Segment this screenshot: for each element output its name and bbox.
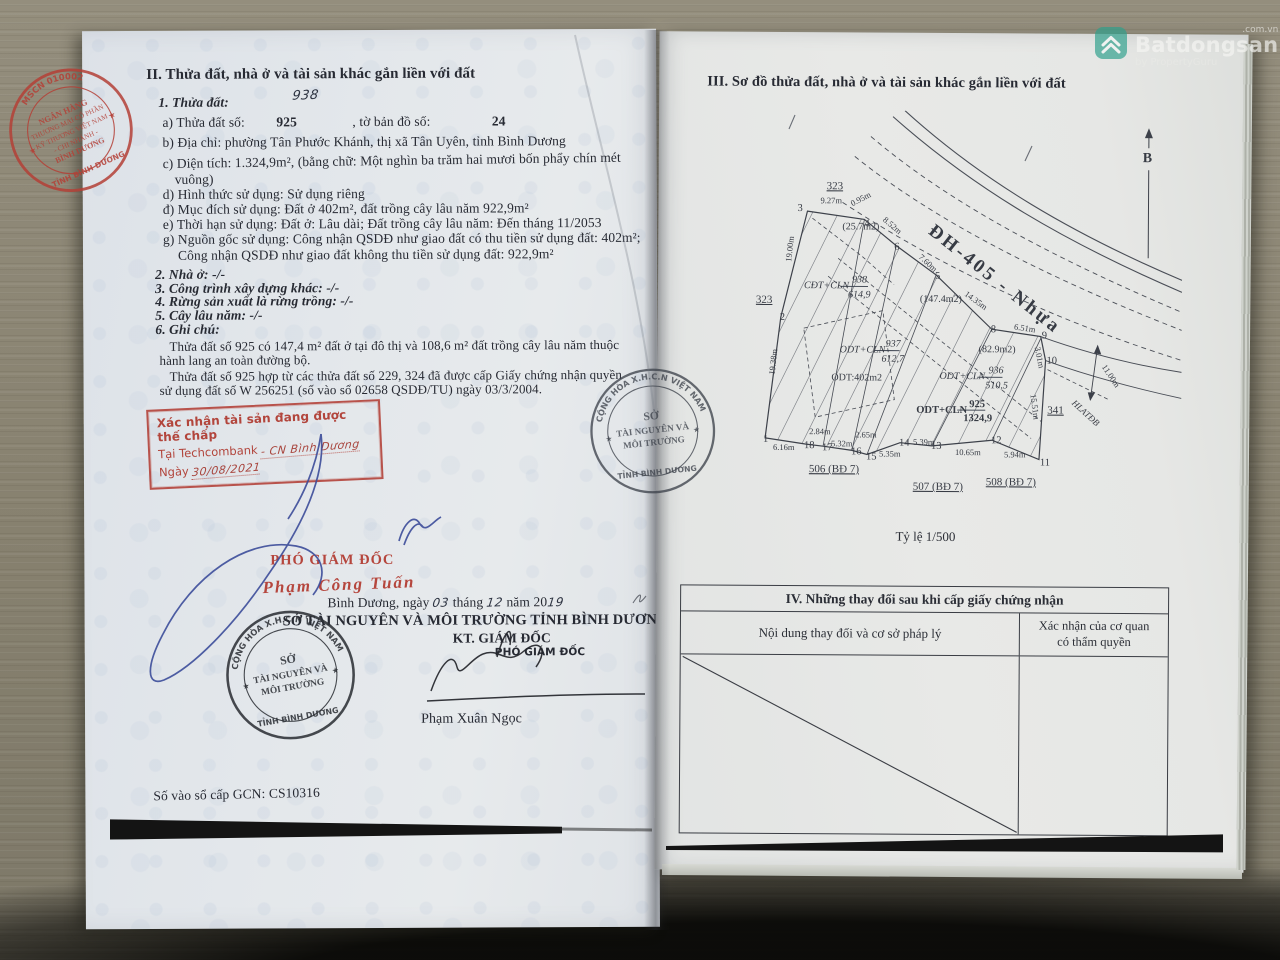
map-label: 14.35m bbox=[963, 289, 990, 313]
plot-number-label: a) Thửa đất số: bbox=[162, 115, 244, 130]
map-label: 507 (BĐ 7) bbox=[913, 481, 964, 493]
mortgage-date-handwritten: 30/08/2021 bbox=[192, 460, 262, 480]
map-label: 3.01m bbox=[1033, 346, 1047, 369]
map-label: 5.35m bbox=[879, 449, 901, 459]
section4-table: IV. Những thay đổi sau khi cấp giấy chứn… bbox=[679, 584, 1170, 836]
map-label: 8 bbox=[991, 324, 996, 335]
map-label: 0.95m bbox=[849, 189, 873, 208]
map-label: 15.51m bbox=[1028, 393, 1041, 420]
address-line: b) Địa chỉ: phường Tân Phước Khánh, thị … bbox=[162, 133, 565, 151]
signer-name: Phạm Xuân Ngọc bbox=[421, 711, 522, 727]
map-label: 1324,9 bbox=[963, 413, 992, 424]
map-label: (25.7m2) bbox=[842, 221, 879, 232]
map-label: 11 bbox=[1040, 458, 1050, 469]
map-label: 508 (BĐ 7) bbox=[986, 476, 1037, 488]
map-label: 14 bbox=[899, 438, 910, 449]
section4-title: IV. Những thay đổi sau khi cấp giấy chứn… bbox=[681, 585, 1168, 614]
origin-line-wrap: Công nhận QSDĐ như giao đất không thu ti… bbox=[178, 246, 554, 264]
map-label: 5.94m bbox=[1004, 449, 1026, 459]
date-text-1: Bình Dương, ngày bbox=[328, 595, 433, 610]
watermark-tagline: by PropertyGuru bbox=[1135, 58, 1278, 68]
section3-title: III. Sơ đồ thửa đất, nhà ở và tài sản kh… bbox=[707, 74, 1066, 93]
date-month-handwritten: 12 bbox=[486, 595, 504, 610]
map-label: 10.65m bbox=[955, 447, 981, 457]
document-right-page: III. Sơ đồ thửa đất, nhà ở và tài sản kh… bbox=[654, 31, 1248, 873]
map-label: 925 bbox=[969, 399, 985, 410]
map-label: 11.00m bbox=[1100, 362, 1123, 389]
plot-number-line: a) Thửa đất số: 925 , tờ bản đồ số: 24 bbox=[162, 113, 505, 130]
watermark-text: .com.vn Batdongsan by PropertyGuru bbox=[1135, 26, 1278, 68]
parcel-boundary bbox=[765, 211, 1047, 460]
map-label: 10 bbox=[1047, 356, 1058, 367]
map-label: ODT+CLN bbox=[840, 344, 887, 355]
map-label: 341 bbox=[1047, 405, 1064, 417]
map-label: 1 bbox=[763, 434, 768, 445]
map-label: 9.27m bbox=[821, 195, 843, 205]
bank-seal-star-left: ★ bbox=[27, 144, 38, 156]
map-label: 506 (BĐ 7) bbox=[809, 463, 860, 475]
map-label: (82.9m2) bbox=[979, 344, 1016, 355]
parcel-hatching bbox=[741, 181, 1183, 480]
section4-body-col2 bbox=[1019, 656, 1168, 835]
map-label: B bbox=[1143, 151, 1152, 166]
map-label: 19.38m bbox=[767, 348, 780, 375]
section1-heading: 1. Thửa đất: bbox=[158, 95, 228, 111]
origin-line: g) Nguồn gốc sử dụng: Công nhận QSDĐ như… bbox=[163, 230, 641, 248]
mortgage-stamp-box: Xác nhận tài sản đang được thế chấp Tại … bbox=[146, 399, 383, 490]
svg-text:MSCN 010002: MSCN 010002 bbox=[15, 62, 88, 109]
watermark: .com.vn Batdongsan by PropertyGuru bbox=[1094, 26, 1278, 68]
section4-empty-body bbox=[680, 654, 1168, 835]
mortgage-date-label: Ngày bbox=[159, 464, 189, 479]
map-label: 16 bbox=[851, 446, 862, 457]
plot-number-handwritten-annotation: 938 bbox=[291, 88, 319, 104]
map-label: HLATĐB bbox=[1069, 397, 1102, 428]
map-scale: Tỷ lệ 1/500 bbox=[895, 529, 955, 545]
area-line: c) Diện tích: 1.324,9m², (bằng chữ: Một … bbox=[163, 150, 621, 172]
batdongsan-logo-icon bbox=[1094, 26, 1128, 60]
map-label: 5 bbox=[935, 271, 940, 282]
section4-col2-line1: Xác nhận của cơ quan bbox=[1039, 619, 1150, 635]
map-label: 936 bbox=[988, 365, 1003, 376]
map-label: 18 bbox=[804, 440, 815, 451]
plot-number-value: 925 bbox=[276, 114, 297, 129]
date-text-2: tháng bbox=[449, 594, 487, 609]
map-label: 6.16m bbox=[773, 442, 795, 452]
cadastral-map: 346589101112131415161718129.27m0.95m8.52… bbox=[741, 110, 1183, 503]
map-label: 323 bbox=[827, 180, 844, 192]
deputy-director-red-title: PHÓ GIÁM ĐỐC bbox=[270, 552, 394, 570]
area-line-wrap: vuông) bbox=[175, 172, 214, 188]
section4-col2-line2: có thẩm quyền bbox=[1057, 635, 1131, 651]
map-label: 323 bbox=[756, 294, 773, 306]
map-label: 612,7 bbox=[882, 354, 906, 365]
map-label: (147.4m2) bbox=[920, 294, 962, 305]
void-diagonal-line bbox=[680, 654, 1020, 834]
map-label: 938 bbox=[852, 274, 867, 285]
map-label: ĐH-405 - Nhựa bbox=[924, 220, 1065, 338]
section6-notes-heading: 6. Ghi chú: bbox=[155, 322, 220, 338]
map-label: 6 bbox=[894, 242, 899, 253]
map-label: 5.32m bbox=[831, 438, 853, 448]
map-label: ODT:402m2 bbox=[831, 372, 882, 383]
map-label: 12 bbox=[991, 435, 1002, 446]
watermark-brand: Batdongsan bbox=[1135, 35, 1278, 56]
registration-number: Số vào sổ cấp GCN: CS10316 bbox=[153, 785, 320, 805]
map-label: ODT+CLN bbox=[939, 371, 986, 382]
section4-col1-header: Nội dung thay đổi và cơ sở pháp lý bbox=[681, 611, 1021, 655]
map-label: 19.00m bbox=[783, 235, 796, 262]
map-label: ODT+CLN bbox=[916, 405, 967, 416]
map-sheet-value: 24 bbox=[492, 113, 506, 128]
map-label: 15 bbox=[866, 451, 877, 462]
map-label: 614,9 bbox=[848, 289, 871, 300]
date-year-handwritten: 19 bbox=[546, 595, 564, 610]
bank-seal-ring-top: MSCN 010002 bbox=[15, 62, 88, 109]
map-label: 2.65m bbox=[855, 429, 877, 439]
map-label: 937 bbox=[886, 339, 902, 350]
mortgage-bank-label: Tại Techcombank bbox=[158, 443, 258, 462]
map-label: CĐT+CLN bbox=[804, 280, 850, 291]
map-label: 3 bbox=[797, 203, 802, 214]
issue-date-line: Bình Dương, ngày 03 tháng 12 năm 2019 bbox=[328, 594, 564, 611]
map-label: 2 bbox=[780, 312, 785, 323]
north-arrow bbox=[1144, 128, 1153, 258]
deputy-director-label: PHÓ GIÁM ĐỐC bbox=[495, 646, 586, 658]
map-label: 510,5 bbox=[985, 380, 1008, 391]
map-sheet-label: , tờ bản đồ số: bbox=[352, 114, 430, 129]
issuing-department: SỞ TÀI NGUYÊN VÀ MÔI TRƯỜNG TỈNH BÌNH DƯ… bbox=[283, 612, 669, 631]
book-spine-fold bbox=[644, 30, 670, 930]
date-day-handwritten: 03 bbox=[432, 595, 450, 610]
note-line-2: hành lang an toàn đường bộ. bbox=[159, 352, 310, 369]
map-label: 5.39m bbox=[913, 437, 935, 447]
kt-director-label: KT. GIÁM ĐỐC bbox=[453, 630, 551, 646]
section4-col2-header: Xác nhận của cơ quan có thẩm quyền bbox=[1020, 613, 1168, 656]
section4-header-row: Nội dung thay đổi và cơ sở pháp lý Xác n… bbox=[681, 611, 1168, 657]
document-left-page: II. Thửa đất, nhà ở và tài sản khác gắn … bbox=[82, 29, 660, 929]
parcel-dividers bbox=[823, 219, 1041, 455]
note-line-4: sử dụng đất số W 256251 (số vào sổ 02658… bbox=[160, 381, 543, 399]
section2-title: II. Thửa đất, nhà ở và tài sản khác gắn … bbox=[146, 66, 475, 84]
map-label: 2.84m bbox=[809, 426, 831, 436]
date-text-3: năm 20 bbox=[503, 594, 547, 609]
